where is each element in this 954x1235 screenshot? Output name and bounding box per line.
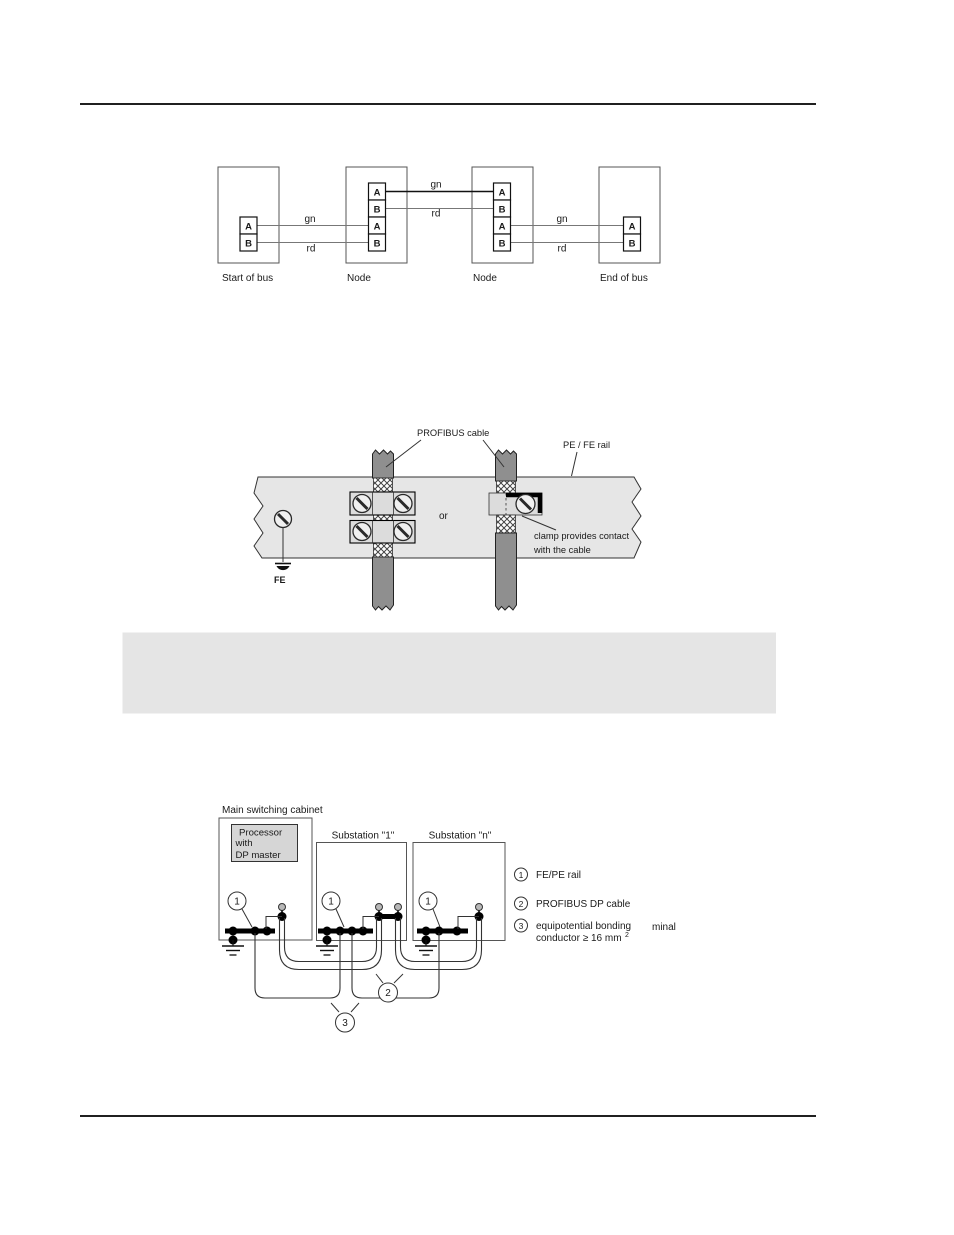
legend-text: PROFIBUS DP cable <box>536 899 631 910</box>
wire-label: rd <box>307 244 316 255</box>
screw-icon <box>394 495 412 513</box>
terminal-block-node1: A B A B <box>369 183 386 251</box>
fe-label: FE <box>274 575 286 585</box>
substation1-box <box>317 843 407 941</box>
screw-icon <box>516 495 535 514</box>
earth-ground-icon <box>415 940 437 955</box>
wire-label: rd <box>558 244 567 255</box>
screw-icon <box>353 495 371 513</box>
bus-topology-diagram: gn rd gn rd gn rd A B A B A B <box>218 167 660 284</box>
station-caption: Node <box>473 273 497 284</box>
terminal-block-end: A B <box>624 217 641 251</box>
legend-num: 3 <box>519 921 524 931</box>
earth-ground-icon <box>222 940 244 955</box>
processor-line: with <box>235 838 253 849</box>
page-artwork: gn rd gn rd gn rd A B A B A B <box>0 0 954 1235</box>
station-caption: Node <box>347 273 371 284</box>
screw-icon <box>353 523 371 541</box>
profibus-cable-right-upper <box>496 450 517 481</box>
legend-item-1: 1 FE/PE rail <box>515 868 582 881</box>
screw-icon <box>275 511 292 528</box>
callout-1-right: 1 <box>419 892 440 927</box>
grounding-diagram: Main switching cabinet Processor with DP… <box>219 805 676 1032</box>
fe-ground-icon <box>275 564 291 571</box>
callout-1-middle: 1 <box>322 892 344 927</box>
shield-clamp-diagram: FE PROFIBUS cable PE / FE rail or clamp … <box>254 428 641 610</box>
terminal-label: A <box>245 222 252 233</box>
substation-n-box <box>413 843 505 941</box>
main-cabinet-title: Main switching cabinet <box>222 805 323 816</box>
svg-text:2: 2 <box>385 988 391 999</box>
note-box <box>123 633 777 714</box>
pe-fe-rail-label: PE / FE rail <box>563 440 610 450</box>
legend-text: FE/PE rail <box>536 870 581 881</box>
terminal-label: A <box>499 222 506 233</box>
shield-clamp-single <box>489 493 542 515</box>
legend-item-2: 2 PROFIBUS DP cable <box>515 897 631 910</box>
terminal-label: A <box>629 222 636 233</box>
terminal-label: B <box>245 239 252 250</box>
terminal-label: B <box>629 239 636 250</box>
profibus-cable-right-lower <box>496 533 517 610</box>
callout-3: 3 <box>331 1003 359 1032</box>
wire-label: gn <box>304 214 315 225</box>
legend-superscript: 2 <box>625 932 629 939</box>
legend: 1 FE/PE rail 2 PROFIBUS DP cable 3 equip… <box>515 868 676 944</box>
clamp-note-line1: clamp provides contact <box>534 531 629 541</box>
terminal-label: A <box>499 188 506 199</box>
terminal-label: B <box>374 239 381 250</box>
profibus-dp-cable-loop <box>280 918 382 970</box>
wire-label: rd <box>432 209 441 220</box>
profibus-cable-label: PROFIBUS cable <box>417 428 489 438</box>
svg-text:1: 1 <box>425 897 431 908</box>
cable-shield-hatch <box>374 543 393 557</box>
legend-num: 2 <box>519 899 524 909</box>
legend-text: equipotential bonding <box>536 921 631 932</box>
terminal-label: B <box>499 239 506 250</box>
legend-item-3: 3 equipotential bonding minal conductor … <box>515 919 676 944</box>
pointer-line <box>572 452 578 476</box>
legend-text: conductor ≥ 16 mm <box>536 933 622 944</box>
callout-1-left: 1 <box>228 892 252 927</box>
terminal-label: A <box>374 188 381 199</box>
terminal-label: B <box>374 205 381 216</box>
substation-caption: Substation "1" <box>332 831 395 842</box>
earth-ground-icon <box>316 940 338 955</box>
terminal-label: A <box>374 222 381 233</box>
terminal-block-start: A B <box>240 217 257 251</box>
clamp-note-line2: with the cable <box>533 545 591 555</box>
cable-shield-hatch <box>374 478 393 492</box>
cable-end-connector <box>266 904 287 930</box>
substation-caption: Substation "n" <box>429 831 492 842</box>
processor-block: Processor with DP master <box>232 825 298 862</box>
station-caption: End of bus <box>600 273 648 284</box>
shield-clamp-double-bottom <box>350 521 415 544</box>
svg-text:1: 1 <box>328 897 334 908</box>
screw-icon <box>394 523 412 541</box>
legend-stray-text: minal <box>652 922 676 933</box>
shield-clamp-double-top <box>350 492 415 515</box>
cable-end-connector <box>458 904 484 930</box>
svg-text:1: 1 <box>234 897 240 908</box>
wire-label: gn <box>430 180 441 191</box>
terminal-label: B <box>499 205 506 216</box>
wire-label: gn <box>556 214 567 225</box>
station-caption: Start of bus <box>222 273 273 284</box>
terminal-block-node2: A B A B <box>494 183 511 251</box>
processor-line: Processor <box>239 828 283 839</box>
legend-num: 1 <box>519 870 524 880</box>
processor-line: DP master <box>236 850 282 861</box>
cable-shield-hatch <box>497 481 516 493</box>
profibus-cable-left-lower <box>373 557 394 610</box>
or-label: or <box>439 511 449 522</box>
cable-shield-hatch <box>497 515 516 533</box>
manual-page: gn rd gn rd gn rd A B A B A B <box>0 0 954 1235</box>
svg-text:3: 3 <box>342 1018 348 1029</box>
